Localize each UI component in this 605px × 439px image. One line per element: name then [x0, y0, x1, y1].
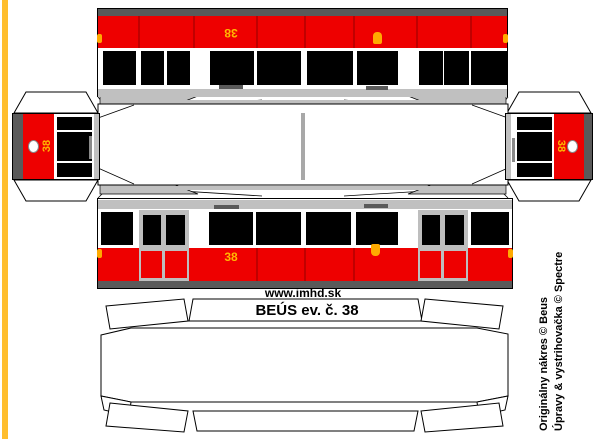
- door-window: [166, 215, 185, 245]
- floor-panel: [101, 328, 508, 402]
- fold-line: [100, 186, 262, 196]
- roof-corner-tab: [100, 96, 198, 107]
- panel-seam: [138, 16, 140, 48]
- floor-tab: [193, 411, 418, 431]
- windshield: [57, 132, 92, 161]
- windshield: [57, 163, 92, 177]
- city-emblem: [373, 32, 382, 44]
- windshield: [517, 163, 552, 177]
- panel-seam: [193, 16, 195, 48]
- fold-line: [494, 184, 508, 198]
- accent-stripe: [2, 0, 8, 439]
- fold-line: [344, 186, 506, 196]
- side-view-bottom: 38: [97, 198, 513, 289]
- panel-seam: [353, 16, 355, 48]
- fold-line: [344, 100, 506, 114]
- roof-chamfer-line: [98, 168, 134, 184]
- panel-seam: [304, 248, 306, 281]
- credits-text: Originálny nákres © Beus Úpravy & vystri…: [537, 209, 569, 431]
- body-red-band: 38: [98, 16, 507, 48]
- end-cap-right: 38: [505, 113, 593, 180]
- door-window: [419, 51, 443, 85]
- door-window: [143, 215, 161, 245]
- right-cap-bottom-tab: [507, 180, 591, 201]
- panel-seam: [256, 16, 258, 48]
- marker-light: [503, 34, 508, 43]
- left-cap-top-tab: [14, 92, 98, 113]
- window: [257, 51, 301, 85]
- right-cap-top-tab: [507, 92, 591, 113]
- fold-line: [98, 97, 112, 114]
- roof-panel: [98, 104, 508, 185]
- roof-chamfer-line: [98, 105, 134, 118]
- chassis-strip: [98, 9, 507, 16]
- destination-box: [364, 204, 388, 208]
- fleet-number: 38: [41, 134, 55, 158]
- door-window: [445, 215, 464, 245]
- roof-edge-strip: [170, 100, 436, 104]
- window: [256, 212, 301, 245]
- fleet-number: 38: [553, 134, 567, 158]
- roof-strip: [98, 200, 512, 209]
- fold-line: [98, 184, 112, 198]
- window: [209, 212, 253, 245]
- door-leaf-seam: [441, 248, 444, 278]
- roof-strip: [94, 114, 99, 179]
- roof-chamfer-line: [472, 105, 508, 118]
- window: [356, 212, 398, 245]
- panel-seam: [470, 16, 472, 48]
- roof-center-seam: [301, 113, 305, 180]
- fleet-number: 38: [216, 24, 246, 40]
- panel-seam: [304, 16, 306, 48]
- fold-line: [100, 100, 262, 114]
- door-window: [422, 215, 440, 245]
- credits-line-2: Úpravy & vystrihovačka © Spectre: [552, 209, 567, 431]
- headlight: [567, 140, 578, 153]
- floor-tab: [101, 396, 131, 416]
- marker-light: [508, 249, 513, 258]
- roof-corner-tab: [100, 183, 198, 194]
- window: [210, 51, 254, 85]
- window: [357, 51, 398, 85]
- floor-tab: [421, 403, 503, 432]
- end-cap-left: 38: [12, 113, 100, 180]
- papercraft-sheet: 38 38 38: [0, 0, 605, 439]
- panel-seam: [416, 16, 418, 48]
- door: [418, 210, 468, 281]
- watermark-text: www.imhd.sk: [178, 286, 428, 300]
- destination-box: [214, 205, 239, 209]
- credits-line-1: Originálny nákres © Beus: [537, 209, 552, 431]
- door-window: [167, 51, 190, 85]
- marker-light: [97, 34, 102, 43]
- floor-tab: [106, 403, 188, 432]
- floor-tab: [421, 299, 503, 329]
- panel-seam: [353, 248, 355, 281]
- roof-strip: [98, 89, 507, 97]
- floor-tab: [106, 299, 188, 329]
- door-handle: [512, 138, 515, 162]
- destination-box: [366, 86, 388, 90]
- window: [471, 212, 509, 245]
- side-view-top: 38: [97, 8, 508, 97]
- window: [471, 51, 507, 85]
- roof-strip: [506, 114, 511, 179]
- roof-chamfer-line: [472, 168, 508, 184]
- door-handle: [89, 136, 92, 159]
- chassis-strip: [584, 114, 592, 179]
- windshield: [57, 117, 92, 130]
- window: [101, 212, 133, 245]
- roof-corner-tab: [408, 183, 506, 194]
- fleet-number: 38: [216, 250, 246, 266]
- city-emblem: [371, 244, 380, 256]
- door-leaf-seam: [162, 248, 165, 278]
- door: [139, 210, 189, 281]
- destination-box: [219, 85, 243, 89]
- fold-line: [494, 97, 508, 114]
- panel-seam: [256, 248, 258, 281]
- window: [306, 212, 351, 245]
- door-window: [141, 51, 164, 85]
- left-cap-bottom-tab: [14, 180, 98, 201]
- chassis-strip: [13, 114, 23, 179]
- marker-light: [97, 249, 102, 258]
- windshield: [517, 117, 552, 130]
- floor-tab: [477, 396, 508, 416]
- windshield: [517, 132, 552, 161]
- floor-title-text: BEÚS ev. č. 38: [193, 302, 421, 319]
- window: [103, 51, 136, 85]
- headlight: [28, 140, 39, 153]
- roof-corner-tab: [408, 96, 506, 107]
- window: [307, 51, 353, 85]
- roof-edge-strip: [170, 186, 436, 190]
- door-window: [444, 51, 469, 85]
